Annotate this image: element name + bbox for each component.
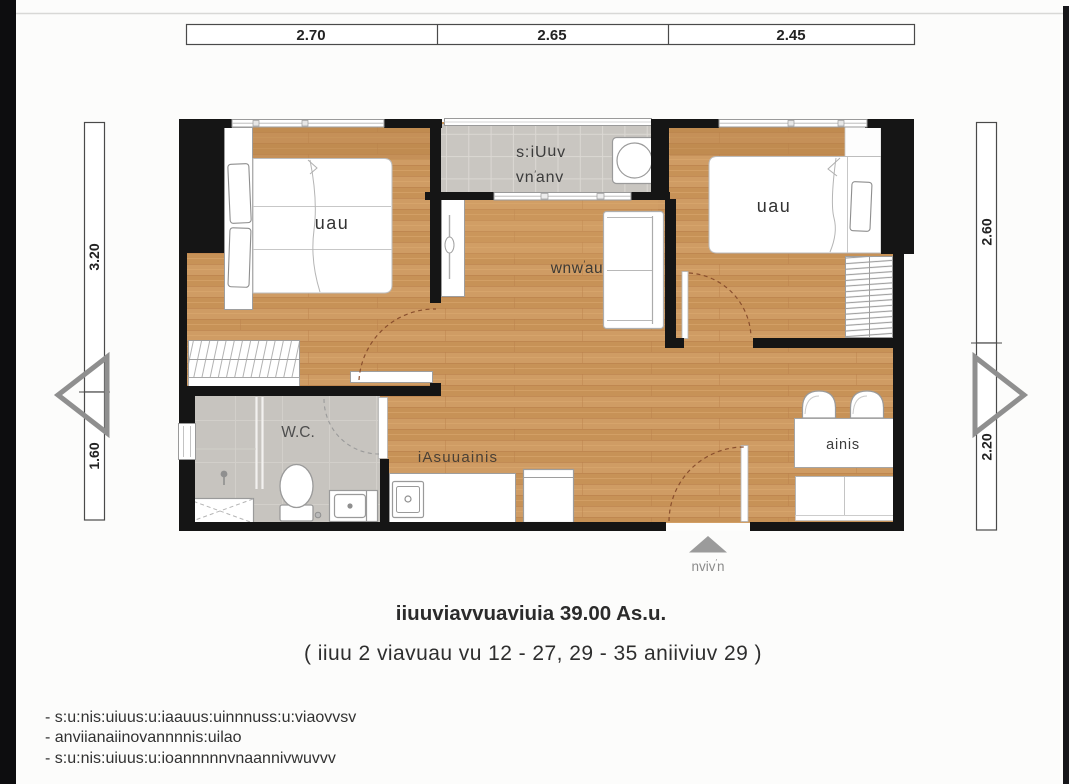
svg-text:2.65: 2.65	[537, 27, 566, 44]
svg-text:ainis: ainis	[826, 437, 860, 453]
svg-text:3.20: 3.20	[86, 243, 102, 270]
svg-text:- s:u:nis:uiuus:u:ioannnnnvnaa: - s:u:nis:uiuus:u:ioannnnnvnaannivwuvvv	[45, 750, 336, 767]
svg-text:- s:u:nis:uiuus:u:iaauus:uinnn: - s:u:nis:uiuus:u:iaauus:uinnnuss:u:viao…	[45, 709, 356, 726]
svg-text:uau: uau	[757, 196, 792, 216]
svg-text:1.60: 1.60	[86, 442, 102, 469]
svg-text:2.60: 2.60	[979, 218, 995, 245]
svg-text:wnw′au: wnw′au	[550, 259, 604, 277]
svg-text:vn′anv: vn′anv	[516, 169, 564, 186]
svg-text:iiuuviavvuaviuia 39.00 As.u.: iiuuviavvuaviuia 39.00 As.u.	[396, 602, 666, 625]
svg-text:W.C.: W.C.	[281, 424, 315, 441]
svg-text:iAsuuainis: iAsuuainis	[418, 449, 498, 466]
svg-text:2.70: 2.70	[296, 27, 325, 44]
svg-text:( iiuu 2 viavuau vu 12 - 27, 2: ( iiuu 2 viavuau vu 12 - 27, 29 - 35 ani…	[304, 642, 762, 665]
svg-text:2.20: 2.20	[979, 433, 995, 460]
svg-text:- anviianaiinovannnnis:uilao: - anviianaiinovannnnis:uilao	[45, 729, 242, 746]
svg-text:nviv′n: nviv′n	[691, 558, 724, 574]
svg-text:2.45: 2.45	[776, 27, 805, 44]
svg-text:s:iUuv: s:iUuv	[516, 143, 566, 161]
svg-text:uau: uau	[315, 213, 350, 233]
